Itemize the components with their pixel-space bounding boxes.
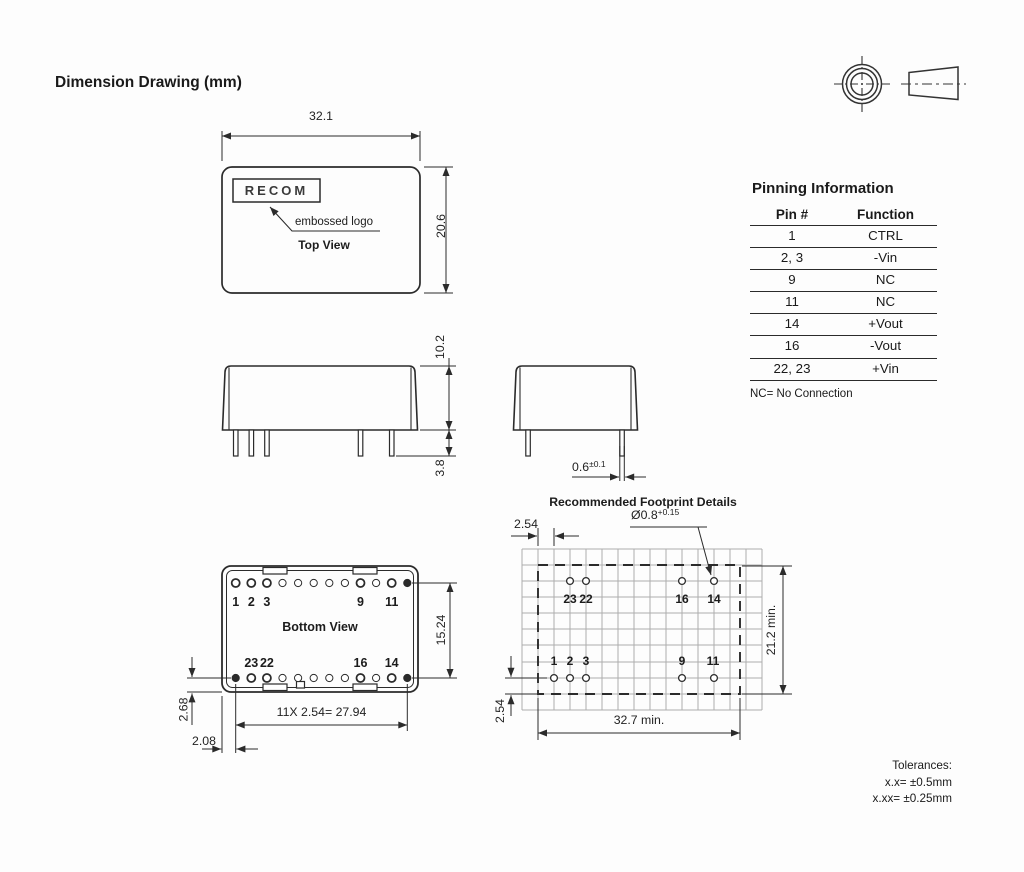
table-row: 1CTRL	[750, 225, 937, 247]
dim-footprint-bottom-offset: 2.54	[494, 690, 508, 732]
pad-label-14: 14	[704, 593, 724, 606]
dim-footprint-width: 32.7 min.	[589, 714, 689, 728]
front-view-dimension-lines	[396, 358, 456, 456]
pad-label-9: 9	[674, 655, 690, 668]
tolerance-xx: x.x= ±0.5mm	[780, 775, 952, 792]
table-row: 16-Vout	[750, 335, 937, 357]
pin-label-14: 14	[382, 657, 402, 671]
top-view-label: Top View	[294, 239, 354, 252]
pad-label-3: 3	[578, 655, 594, 668]
table-row: 11NC	[750, 291, 937, 313]
bottom-view-label: Bottom View	[270, 621, 370, 635]
pin-label-9: 9	[353, 596, 369, 610]
pinning-table: 1CTRL 2, 3-Vin 9NC 11NC 14+Vout 16-Vout …	[750, 225, 937, 381]
tolerances-block: Tolerances: x.x= ±0.5mm x.xx= ±0.25mm	[780, 758, 952, 808]
table-row: 22, 23+Vin	[750, 358, 937, 380]
dim-col-edge: 2.08	[186, 735, 222, 749]
projection-symbol-icon	[834, 56, 966, 112]
pin-label-16: 16	[351, 657, 371, 671]
pin-label-11: 11	[384, 596, 400, 610]
front-view-outline	[223, 366, 418, 456]
footprint-grid	[522, 549, 762, 710]
page-title: Dimension Drawing (mm)	[55, 74, 242, 92]
pad-label-16: 16	[672, 593, 692, 606]
table-row: 9NC	[750, 269, 937, 291]
pad-label-1: 1	[546, 655, 562, 668]
pin-label-3: 3	[259, 596, 275, 610]
recom-logo: RECOM	[233, 179, 320, 202]
tolerances-label: Tolerances:	[780, 758, 952, 775]
dim-body-height: 10.2	[434, 329, 448, 365]
dim-row-edge: 2.68	[178, 691, 191, 729]
pinning-table-header: Pin # Function	[750, 204, 937, 225]
dimension-drawing-page: Dimension Drawing (mm) 32.1 20.6 RECOM e…	[0, 0, 1024, 872]
header-function: Function	[834, 204, 937, 225]
dim-pin-width: 0.6±0.1	[572, 460, 606, 475]
pin-label-1: 1	[228, 596, 244, 610]
tolerance-xxx: x.xx= ±0.25mm	[780, 791, 952, 808]
dim-top-height: 20.6	[435, 206, 449, 246]
dim-pin-length: 3.8	[434, 453, 448, 483]
end-view-outline	[514, 366, 638, 456]
dim-hole-diameter: Ø0.8+0.15	[631, 508, 679, 523]
pin-label-2: 2	[243, 596, 259, 610]
pad-label-11: 11	[705, 655, 721, 668]
drawing-linework	[0, 0, 1024, 872]
pad-label-2: 2	[562, 655, 578, 668]
table-row: 14+Vout	[750, 313, 937, 335]
header-pin: Pin #	[750, 204, 834, 225]
dim-grid-pitch: 2.54	[506, 518, 546, 532]
top-view-dimension-lines	[222, 131, 453, 293]
pin-label-22: 22	[257, 657, 277, 671]
footprint-dimension-lines	[505, 527, 792, 740]
embossed-logo-annotation: embossed logo	[295, 216, 373, 229]
pinning-info-title: Pinning Information	[752, 180, 894, 197]
dim-row-pitch: 15.24	[435, 606, 449, 654]
pad-label-22: 22	[576, 593, 596, 606]
nc-note: NC= No Connection	[750, 388, 853, 400]
table-row: 2, 3-Vin	[750, 247, 937, 269]
dim-top-width: 32.1	[296, 110, 346, 124]
dim-pin-pitch: 11X 2.54= 27.94	[240, 706, 403, 720]
dim-footprint-height: 21.2 min.	[765, 594, 779, 666]
